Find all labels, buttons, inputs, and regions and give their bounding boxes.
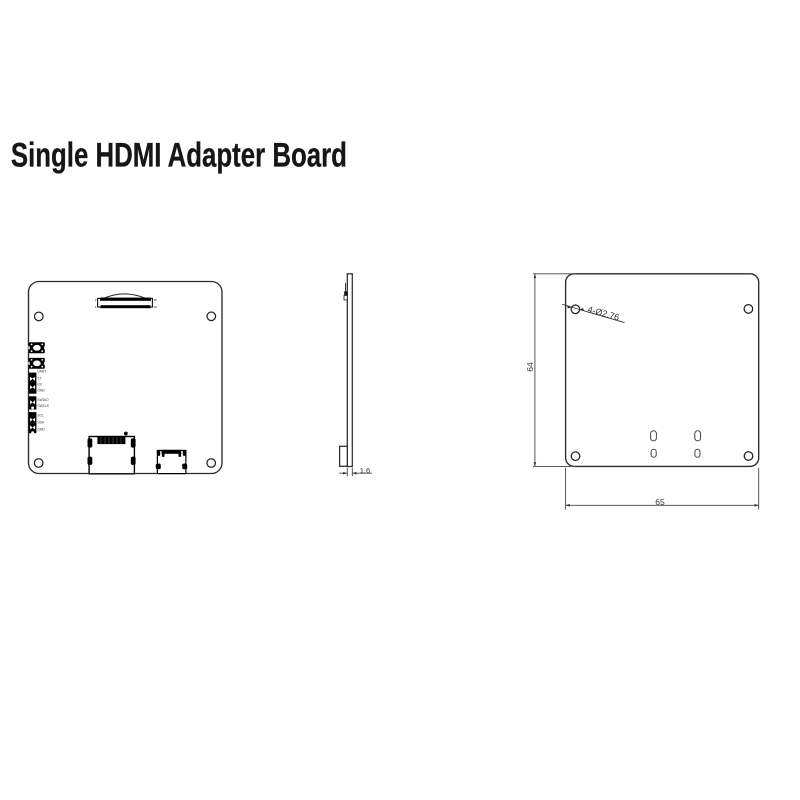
svg-text:GND: GND	[37, 428, 45, 432]
svg-text:64: 64	[525, 362, 535, 372]
svg-text:SDA: SDA	[37, 421, 45, 425]
svg-text:Single HDMI Adapter Board: Single HDMI Adapter Board	[11, 137, 347, 175]
svg-text:30: 30	[153, 298, 157, 302]
svg-text:SCL: SCL	[37, 414, 44, 418]
svg-text:65: 65	[655, 497, 665, 507]
svg-text:29: 29	[153, 305, 157, 309]
svg-text:RX: RX	[37, 382, 42, 386]
svg-text:1.6: 1.6	[360, 466, 370, 475]
svg-text:GND: GND	[37, 389, 45, 393]
svg-text:SWDIO: SWDIO	[37, 398, 49, 402]
svg-text:UART: UART	[37, 370, 46, 374]
svg-text:SWCLK: SWCLK	[37, 404, 50, 408]
